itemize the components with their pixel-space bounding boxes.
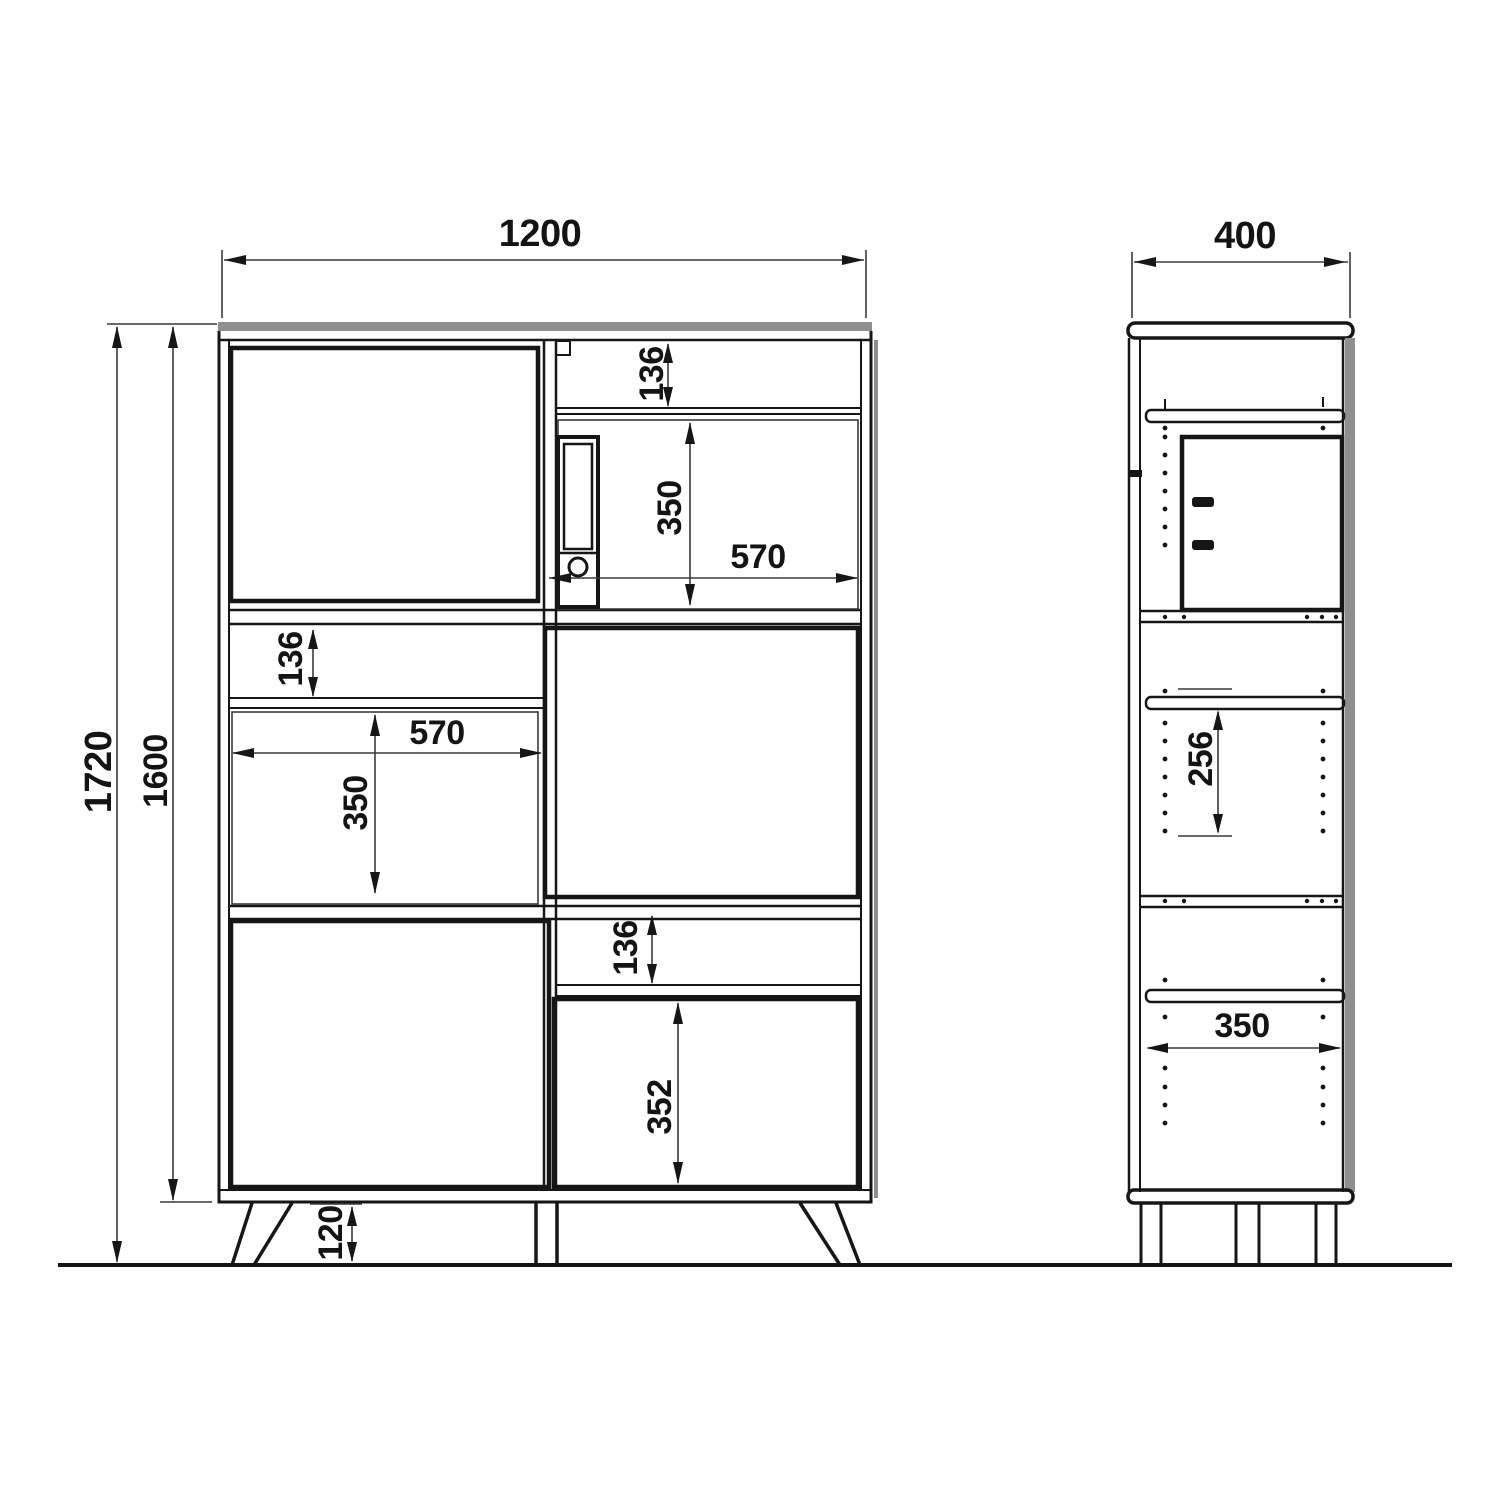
arrowhead-left	[1146, 1043, 1168, 1053]
dim-middle-drawer-height: 136	[272, 629, 318, 697]
side-shelf-top	[1146, 410, 1344, 422]
arrowhead-right	[836, 573, 858, 583]
right-leg-inner-edge	[800, 1203, 840, 1265]
dim-bottom-drawer-height: 136	[607, 915, 657, 984]
front-top-panel-shadow	[218, 322, 872, 331]
dim-overall-width: 1200	[222, 213, 866, 318]
arrowhead-right	[1324, 257, 1346, 267]
dim-top-drawer-label: 136	[633, 346, 671, 401]
arrowhead-up	[370, 714, 380, 736]
middle-left-compartment	[232, 712, 538, 904]
arrowhead-down	[647, 964, 657, 984]
dim-total-height-label: 1720	[78, 731, 120, 814]
dim-top-compartment-height-label: 350	[651, 480, 689, 535]
middle-right-door	[545, 628, 858, 897]
dim-shelf-spacing: 256	[1178, 689, 1232, 836]
dim-shelf-spacing-label: 256	[1182, 731, 1220, 786]
arrowhead-left	[224, 255, 246, 265]
dim-top-compartment-width-label: 570	[730, 538, 785, 576]
arrowhead-down	[112, 1241, 122, 1263]
arrowhead-up	[168, 326, 178, 348]
file-binder-hole	[569, 558, 587, 576]
technical-drawing-canvas: 1200 1720 1600 136	[0, 0, 1500, 1500]
top-right-compartment	[558, 420, 858, 609]
dim-middle-drawer-label: 136	[272, 631, 310, 686]
dim-bottom-door-height: 352	[641, 1002, 683, 1184]
dim-bottom-door-height-label: 352	[641, 1079, 679, 1134]
shelf-pin-holes-top	[1163, 435, 1168, 548]
side-back-shadow	[1345, 338, 1355, 1192]
top-left-door	[231, 348, 538, 601]
dim-top-drawer-height: 136	[633, 343, 673, 407]
door-handle-notch	[556, 341, 570, 355]
arrowhead-down	[370, 872, 380, 894]
arrowhead-down	[168, 1179, 178, 1201]
side-door-panel	[1182, 437, 1342, 610]
side-shelf-bottom	[1146, 990, 1344, 1002]
dim-leg-height: 120	[310, 1204, 362, 1262]
arrowhead-down	[685, 584, 695, 606]
dim-middle-compartment-width-label: 570	[409, 714, 464, 752]
file-binder	[558, 437, 598, 607]
partition1-pin-holes	[1163, 615, 1338, 619]
side-edge-hinge-mark	[1128, 470, 1142, 477]
arrowhead-right	[842, 255, 864, 265]
arrowhead-down	[1213, 814, 1223, 834]
dim-leg-height-label: 120	[312, 1205, 350, 1260]
dim-overall-depth: 400	[1132, 215, 1350, 318]
left-leg-inner-edge	[254, 1203, 292, 1265]
side-bottom-panel	[1128, 1190, 1353, 1203]
dim-carcass-height: 1600	[137, 326, 212, 1202]
arrowhead-left	[232, 748, 254, 758]
arrowhead-up	[112, 326, 122, 348]
dim-interior-depth-label: 350	[1214, 1007, 1269, 1045]
arrowhead-up	[673, 1002, 683, 1024]
hinge-icon	[1192, 497, 1214, 507]
dim-overall-depth-label: 400	[1214, 215, 1276, 257]
front-view: 1200 1720 1600 136	[78, 213, 876, 1265]
shelf-pin-holes-bottom	[1163, 1066, 1326, 1126]
arrowhead-up	[685, 422, 695, 444]
dim-interior-depth: 350	[1146, 1007, 1341, 1053]
dim-middle-compartment-width: 570	[232, 714, 542, 758]
arrowhead-down	[673, 1162, 683, 1184]
bottom-right-door	[554, 999, 858, 1187]
side-top-panel	[1128, 323, 1353, 338]
dim-bottom-drawer-label: 136	[607, 920, 645, 975]
hinge-icon	[1192, 540, 1214, 550]
side-shelf-middle	[1146, 697, 1344, 709]
dim-middle-compartment-height-label: 350	[337, 775, 375, 830]
drawing-page: 1200 1720 1600 136	[0, 0, 1500, 1500]
dim-carcass-height-label: 1600	[137, 734, 175, 808]
arrowhead-up	[1213, 710, 1223, 730]
bottom-left-door	[231, 921, 549, 1187]
partition2-pin-holes	[1163, 899, 1338, 903]
side-legs	[1141, 1203, 1336, 1265]
dim-overall-width-label: 1200	[499, 213, 582, 255]
left-leg-outer-edge	[232, 1203, 252, 1265]
file-binder-label	[564, 444, 592, 549]
dim-middle-compartment-height: 350	[337, 714, 380, 894]
dim-top-compartment-width: 570	[549, 538, 858, 583]
arrowhead-left	[1134, 257, 1156, 267]
arrowhead-right	[1319, 1043, 1341, 1053]
side-view: 256 350	[1128, 215, 1355, 1265]
right-leg-outer-edge	[836, 1203, 860, 1265]
